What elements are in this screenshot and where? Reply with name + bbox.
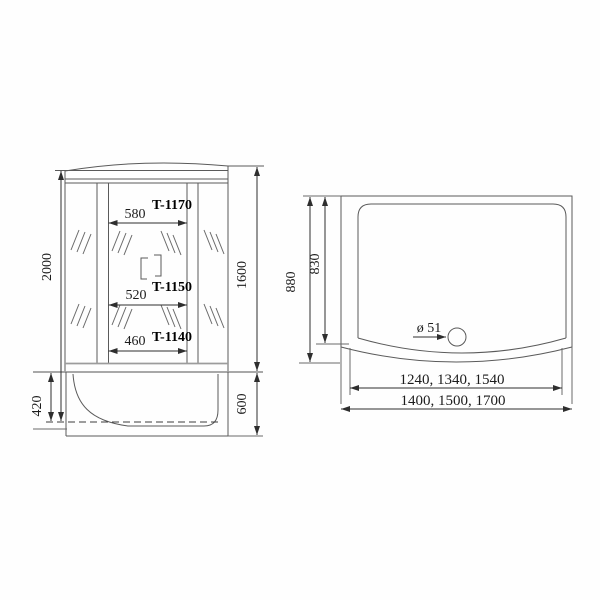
dim-label-830: 830: [308, 254, 323, 275]
dim-label-1600: 1600: [235, 261, 250, 289]
dim-label-600: 600: [235, 394, 250, 415]
dim-door-width-460: 460 T-1140: [109, 330, 192, 351]
dim-width-inner: 1240, 1340, 1540: [350, 348, 562, 395]
dim-depth-inner: 830: [308, 197, 349, 344]
dim-label-width-outer: 1400, 1500, 1700: [401, 393, 506, 409]
tray-inner-outline: [358, 204, 566, 338]
tray-inner-profile: [73, 374, 218, 426]
dim-tray-height: 420: [30, 373, 51, 421]
dim-label-880: 880: [284, 272, 299, 293]
drain-hole: [448, 328, 466, 346]
dim-depth-outer: 880: [284, 196, 341, 363]
model-label-t1140: T-1140: [152, 330, 192, 345]
dim-door-width-520: 520 T-1150: [109, 280, 192, 305]
model-label-t1170: T-1170: [152, 198, 192, 213]
drain: ø 51: [413, 321, 466, 346]
dim-label-420: 420: [30, 396, 45, 417]
model-label-t1150: T-1150: [152, 280, 192, 295]
dim-door-width-580: 580 T-1170: [109, 198, 192, 223]
dim-label-520: 520: [126, 288, 147, 303]
dim-label-2000: 2000: [40, 253, 55, 281]
shower-cabin-drawing: 580 T-1170 520 T-1150 460 T-1140 2000 16…: [0, 0, 600, 600]
dim-label-drain: ø 51: [417, 321, 442, 336]
tray-outer-front-curve: [341, 347, 572, 362]
top-view: ø 51 880 830 1240, 1340, 1540 1400, 1: [284, 196, 572, 409]
dim-label-580: 580: [125, 207, 146, 222]
glass-hatch-marks: [71, 230, 224, 329]
front-view: 580 T-1170 520 T-1150 460 T-1140 2000 16…: [30, 163, 264, 436]
tray-front-view: [33, 372, 228, 436]
tray-inner-front-curve: [358, 338, 566, 353]
roof-arc: [65, 163, 264, 171]
dim-label-width-inner: 1240, 1340, 1540: [400, 372, 505, 388]
dim-glass-height: 1600: [235, 167, 257, 371]
dim-label-460: 460: [125, 334, 146, 349]
dim-tray-depth: 600: [228, 373, 263, 436]
tray-outer-outline: [341, 196, 572, 347]
technical-drawing-page: 580 T-1170 520 T-1150 460 T-1140 2000 16…: [0, 0, 600, 600]
door-handle: [141, 255, 161, 279]
